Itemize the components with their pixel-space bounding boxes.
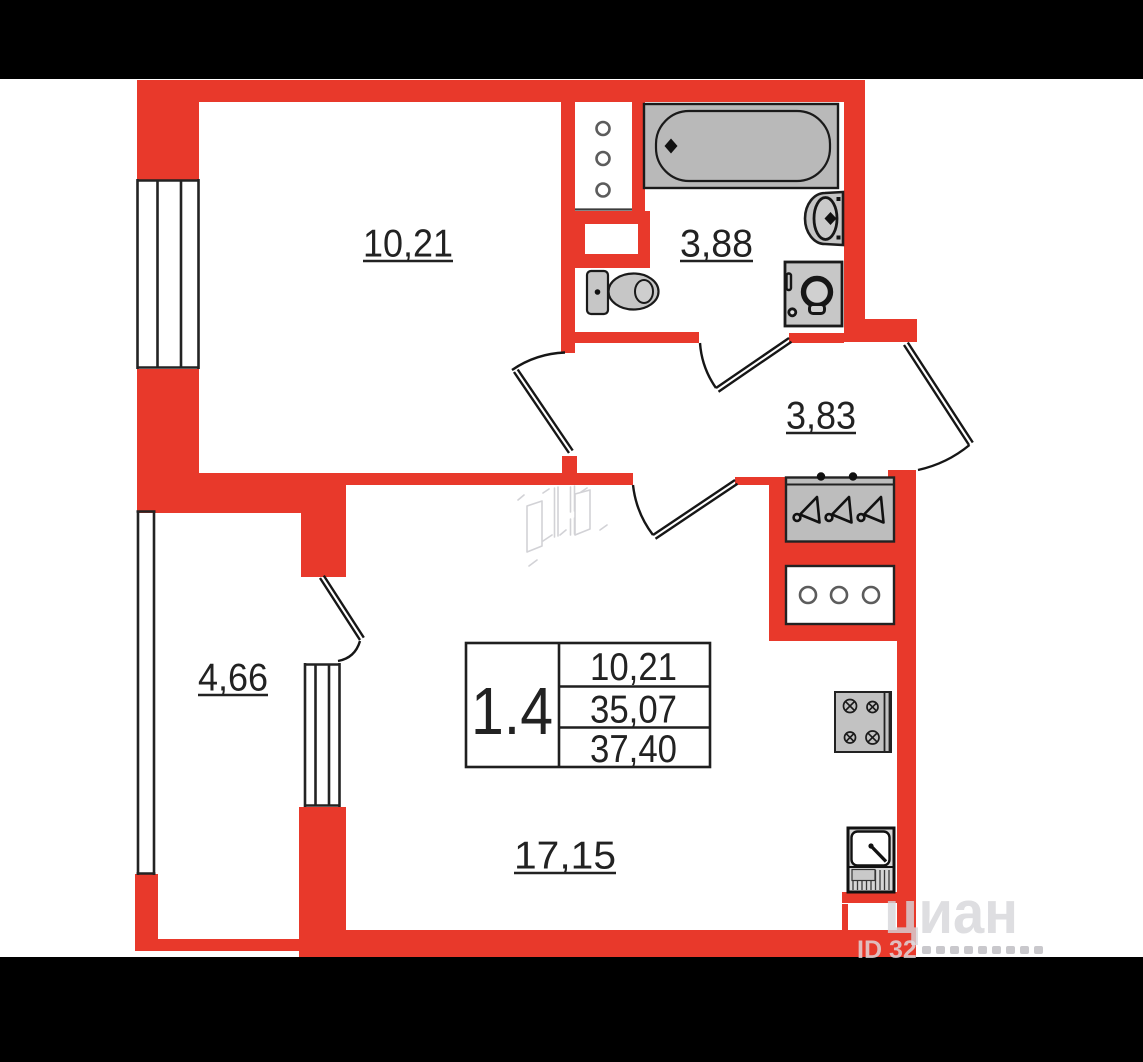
svg-text:4,66: 4,66 xyxy=(198,657,268,700)
svg-text:37,40: 37,40 xyxy=(590,728,677,771)
svg-text:10,21: 10,21 xyxy=(363,223,453,266)
svg-text:1.4: 1.4 xyxy=(471,674,553,749)
svg-text:10,21: 10,21 xyxy=(590,646,677,689)
svg-text:ID 32: ID 32 xyxy=(857,936,917,964)
svg-text:35,07: 35,07 xyxy=(590,689,677,732)
svg-text:3,83: 3,83 xyxy=(786,395,856,438)
svg-text:3,88: 3,88 xyxy=(680,223,753,266)
svg-text:17,15: 17,15 xyxy=(514,835,616,878)
